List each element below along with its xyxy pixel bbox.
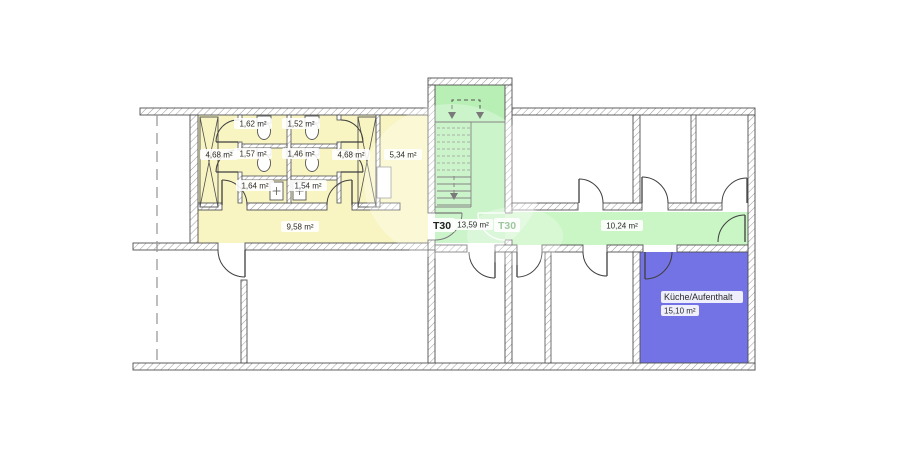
bottom-outer-wall bbox=[133, 363, 755, 370]
top-wall-right-wing bbox=[512, 108, 755, 115]
floor-plan-svg: 1,62 m² 1,52 m² 1,57 m² 1,46 m² 4,68 m² … bbox=[0, 0, 900, 450]
stall-divider-r1 bbox=[291, 144, 337, 148]
door-upper-room-3 bbox=[722, 178, 747, 203]
label-stairwell: 13,59 m² bbox=[457, 221, 489, 230]
label-stall-mid-right: 1,46 m² bbox=[287, 150, 314, 159]
corridor-bottom-wall-e bbox=[677, 245, 748, 252]
label-ante-right: 1,54 m² bbox=[294, 182, 321, 191]
corridor-top-wall-b bbox=[603, 203, 642, 210]
label-wc-corridor: 9,58 m² bbox=[286, 223, 313, 232]
stall-divider-l2 bbox=[242, 176, 287, 180]
label-kitchen-name: Küche/Aufenthalt bbox=[664, 292, 733, 302]
door-upper-room-1 bbox=[579, 179, 603, 203]
label-stall-top-left: 1,62 m² bbox=[239, 120, 266, 129]
floor-plan-page: 1,62 m² 1,52 m² 1,57 m² 1,46 m² 4,68 m² … bbox=[0, 0, 900, 450]
label-ante-left: 1,64 m² bbox=[241, 182, 268, 191]
lower-divider-2 bbox=[545, 252, 551, 363]
wc-corridor-wall-b bbox=[247, 203, 327, 210]
label-kitchen-area: 15,10 m² bbox=[664, 307, 696, 316]
label-t30-right: T30 bbox=[498, 220, 516, 232]
stall-divider-r2 bbox=[291, 176, 337, 180]
label-t30-left: T30 bbox=[433, 220, 451, 232]
top-wall-left-wing bbox=[140, 108, 428, 115]
stair-top-wall bbox=[428, 78, 512, 85]
upper-divider-1 bbox=[633, 115, 640, 203]
wall-below-stair bbox=[428, 250, 435, 363]
upper-divider-2 bbox=[691, 115, 696, 203]
door-lower-left-room bbox=[218, 250, 245, 277]
mid-wall-left-a bbox=[133, 243, 218, 250]
stall-divider-l1 bbox=[242, 144, 287, 148]
stall-right-wall-c bbox=[337, 172, 341, 203]
door-upper-room-2 bbox=[642, 177, 668, 203]
lower-left-divider bbox=[241, 280, 247, 363]
door-lower-room-3 bbox=[583, 252, 607, 276]
stall-right-wall-b bbox=[337, 142, 341, 150]
label-stall-mid-left: 1,57 m² bbox=[239, 150, 266, 159]
label-side-room: 5,34 m² bbox=[389, 151, 416, 160]
kitchen-left-wall bbox=[633, 252, 640, 363]
label-corridor: 10,24 m² bbox=[606, 222, 638, 231]
stall-right-wall-a bbox=[337, 115, 341, 120]
lower-divider-1 bbox=[505, 252, 512, 363]
label-stall-top-right: 1,52 m² bbox=[287, 120, 314, 129]
corridor-bottom-wall-d bbox=[607, 245, 643, 252]
right-outer-wall bbox=[748, 115, 755, 370]
corridor-top-wall-c bbox=[668, 203, 722, 210]
label-lobby-left: 4,68 m² bbox=[205, 151, 232, 160]
wc-left-wall bbox=[190, 115, 198, 243]
label-lobby-right: 4,68 m² bbox=[337, 151, 364, 160]
